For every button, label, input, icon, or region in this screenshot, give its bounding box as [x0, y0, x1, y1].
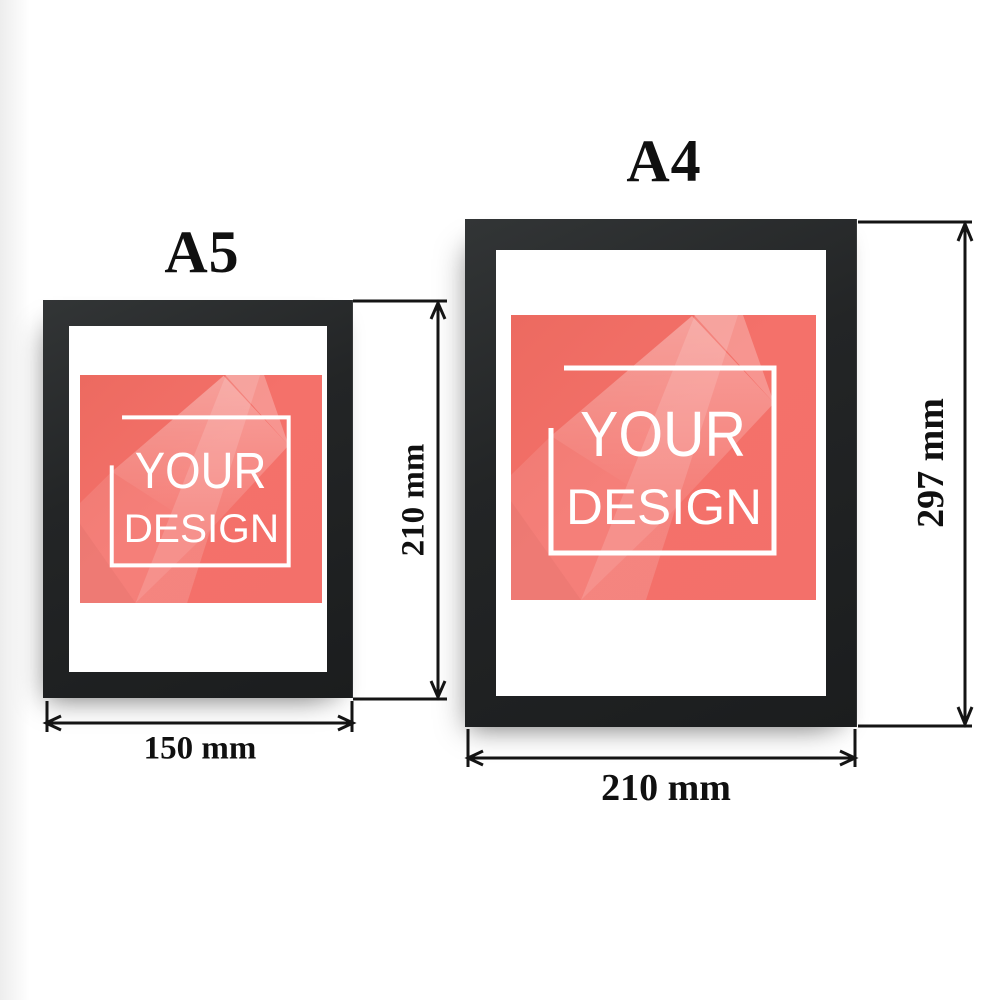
- arrowhead-down-icon: [958, 707, 972, 724]
- a5-height-label: 210 mm: [398, 444, 431, 557]
- arrowhead-left-icon: [468, 751, 483, 765]
- a5-width-dimension: [46, 701, 353, 732]
- poster-text-line1: YOUR: [580, 398, 746, 470]
- a5-size-label: A5: [164, 222, 239, 282]
- a4-width-label: 210 mm: [601, 769, 731, 807]
- a5-picture-frame: YOUR DESIGN: [43, 300, 353, 698]
- a5-white-mat: YOUR DESIGN: [69, 326, 327, 672]
- a5-width-label: 150 mm: [144, 733, 257, 766]
- a4-width-dimension: [468, 729, 855, 767]
- arrowhead-right-icon: [338, 716, 353, 730]
- a4-poster-artwork: YOUR DESIGN: [511, 315, 816, 600]
- arrowhead-up-icon: [431, 303, 445, 319]
- a4-white-mat: YOUR DESIGN: [496, 250, 826, 696]
- poster-text-line2: DESIGN: [124, 507, 280, 551]
- poster-text-line1: YOUR: [135, 442, 267, 499]
- arrowhead-left-icon: [46, 716, 61, 730]
- a4-picture-frame: YOUR DESIGN: [465, 219, 857, 727]
- arrowhead-right-icon: [840, 751, 855, 765]
- poster-size-comparison-mockup: YOUR DESIGN: [0, 0, 1000, 1000]
- a4-height-label: 297 mm: [912, 398, 950, 528]
- poster-text-line2: DESIGN: [566, 479, 762, 535]
- a4-size-label: A4: [626, 131, 701, 191]
- a5-poster-artwork: YOUR DESIGN: [80, 375, 322, 603]
- arrowhead-up-icon: [958, 224, 972, 241]
- arrowhead-down-icon: [431, 681, 445, 697]
